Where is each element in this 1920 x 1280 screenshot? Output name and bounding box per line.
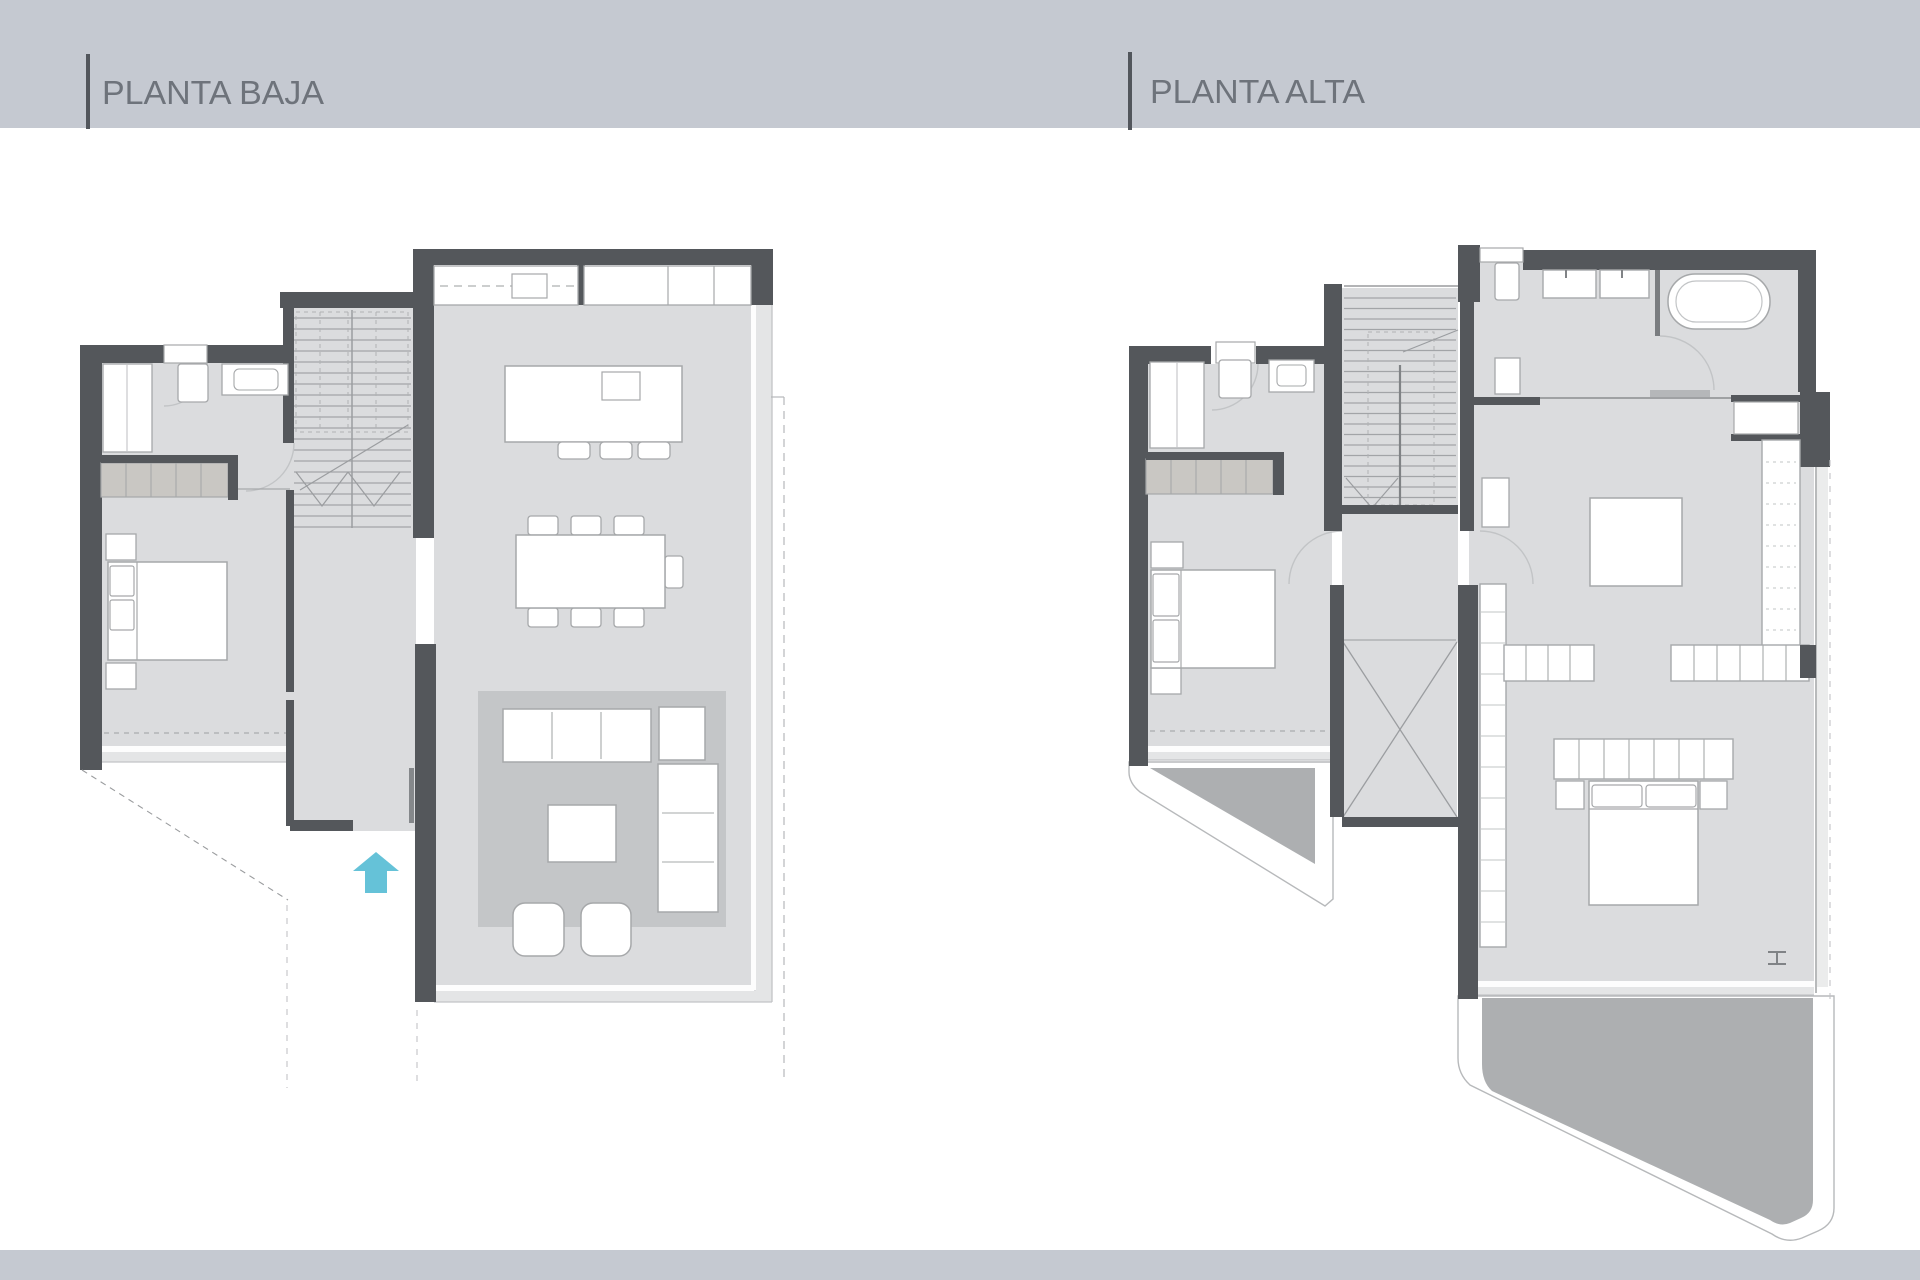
svg-text:PLANTA BAJA: PLANTA BAJA: [102, 74, 324, 111]
svg-text:PLANTA ALTA: PLANTA ALTA: [1150, 73, 1365, 110]
